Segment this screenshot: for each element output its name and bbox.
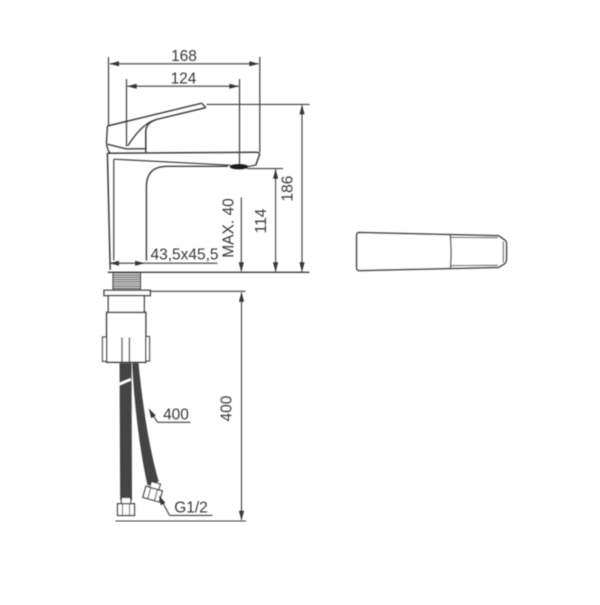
svg-text:43,5x45,5: 43,5x45,5	[150, 246, 218, 263]
svg-text:400: 400	[219, 395, 236, 421]
svg-text:186: 186	[280, 176, 297, 202]
svg-text:168: 168	[171, 48, 197, 65]
svg-text:G1/2: G1/2	[174, 499, 208, 516]
svg-text:MAX. 40: MAX. 40	[221, 198, 238, 258]
svg-text:400: 400	[163, 407, 189, 424]
svg-text:114: 114	[253, 208, 270, 233]
svg-text:124: 124	[171, 71, 197, 88]
